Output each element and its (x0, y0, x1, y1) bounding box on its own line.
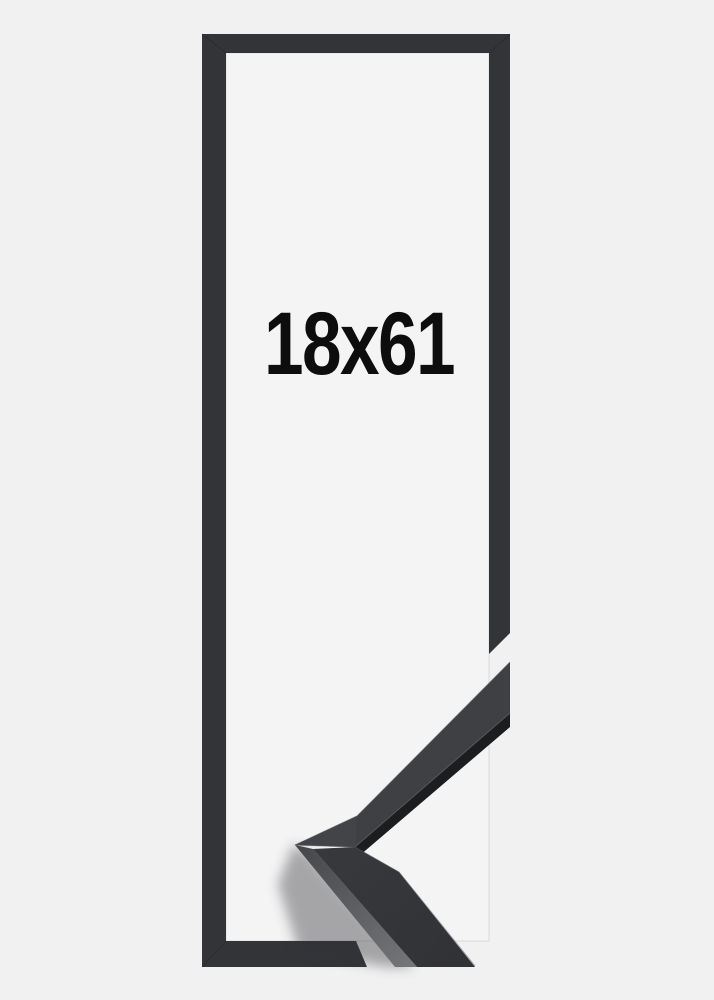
frame-illustration (0, 0, 714, 1000)
size-label: 18x61 (199, 297, 519, 389)
frame-opening (226, 53, 489, 941)
frame-product-image: 18x61 (0, 0, 714, 1000)
frame-left-bar (202, 34, 226, 967)
frame-top-bar (202, 34, 510, 53)
